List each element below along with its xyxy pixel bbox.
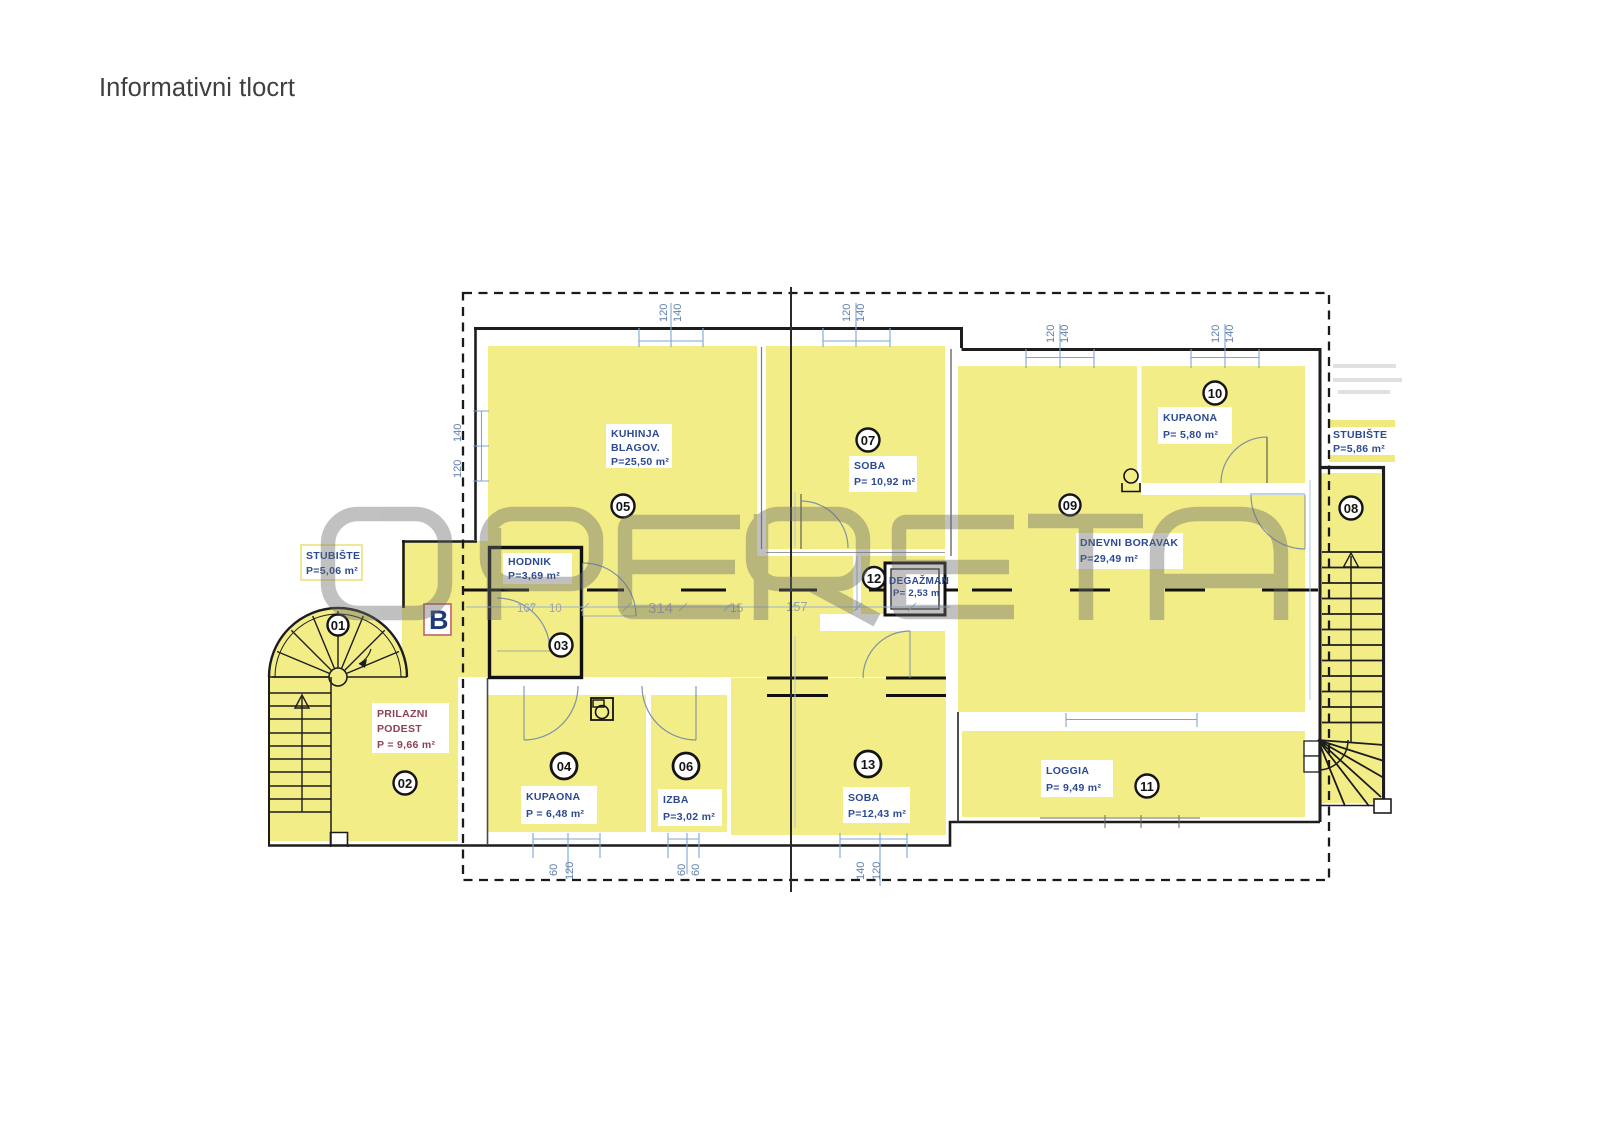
svg-text:157: 157: [786, 599, 808, 614]
svg-text:IZBA: IZBA: [663, 794, 689, 806]
svg-text:SOBA: SOBA: [848, 792, 880, 804]
svg-text:P= 10,92 m²: P= 10,92 m²: [854, 476, 916, 488]
svg-text:P = 6,48 m²: P = 6,48 m²: [526, 808, 584, 820]
svg-text:13: 13: [861, 757, 875, 772]
svg-text:120: 120: [871, 862, 883, 880]
svg-text:60: 60: [690, 864, 702, 876]
svg-text:140: 140: [1224, 325, 1236, 343]
svg-text:120: 120: [1045, 325, 1057, 343]
svg-text:06: 06: [679, 759, 693, 774]
svg-text:SOBA: SOBA: [854, 460, 886, 472]
svg-text:LOGGIA: LOGGIA: [1046, 765, 1089, 777]
svg-text:120: 120: [1210, 325, 1222, 343]
svg-text:140: 140: [1059, 325, 1071, 343]
svg-text:04: 04: [557, 759, 572, 774]
svg-text:P= 5,80 m²: P= 5,80 m²: [1163, 429, 1218, 441]
svg-text:07: 07: [861, 433, 875, 448]
svg-text:PODEST: PODEST: [377, 723, 422, 735]
svg-text:140: 140: [855, 304, 867, 322]
svg-text:60: 60: [548, 864, 560, 876]
svg-text:12: 12: [867, 571, 881, 586]
svg-text:P=5,86 m²: P=5,86 m²: [1333, 443, 1385, 455]
svg-text:P=25,50 m²: P=25,50 m²: [611, 456, 669, 468]
svg-text:P= 9,49 m²: P= 9,49 m²: [1046, 782, 1101, 794]
svg-text:01: 01: [331, 618, 345, 633]
svg-text:P=3,02 m²: P=3,02 m²: [663, 811, 715, 823]
svg-text:10: 10: [549, 603, 562, 615]
svg-text:PRILAZNI: PRILAZNI: [377, 708, 428, 720]
svg-text:140: 140: [672, 304, 684, 322]
svg-text:BLAGOV.: BLAGOV.: [611, 442, 660, 454]
svg-text:09: 09: [1063, 498, 1077, 513]
svg-text:60: 60: [676, 864, 688, 876]
svg-text:P=12,43 m²: P=12,43 m²: [848, 808, 906, 820]
svg-text:KUPAONA: KUPAONA: [526, 791, 581, 803]
svg-text:140: 140: [855, 862, 867, 880]
svg-text:STUBIŠTE: STUBIŠTE: [1333, 428, 1387, 441]
svg-text:03: 03: [554, 638, 568, 653]
svg-text:KUPAONA: KUPAONA: [1163, 412, 1218, 424]
svg-text:120: 120: [658, 304, 670, 322]
svg-text:P = 9,66 m²: P = 9,66 m²: [377, 739, 435, 751]
svg-text:120: 120: [564, 862, 576, 880]
svg-text:10: 10: [1208, 386, 1222, 401]
svg-text:02: 02: [398, 776, 412, 791]
svg-text:167: 167: [517, 603, 536, 615]
svg-text:120: 120: [841, 304, 853, 322]
svg-text:HODNIK: HODNIK: [508, 556, 551, 568]
svg-text:KUHINJA: KUHINJA: [611, 428, 660, 440]
svg-text:08: 08: [1344, 501, 1358, 516]
svg-text:11: 11: [1140, 779, 1154, 794]
svg-text:05: 05: [616, 499, 630, 514]
